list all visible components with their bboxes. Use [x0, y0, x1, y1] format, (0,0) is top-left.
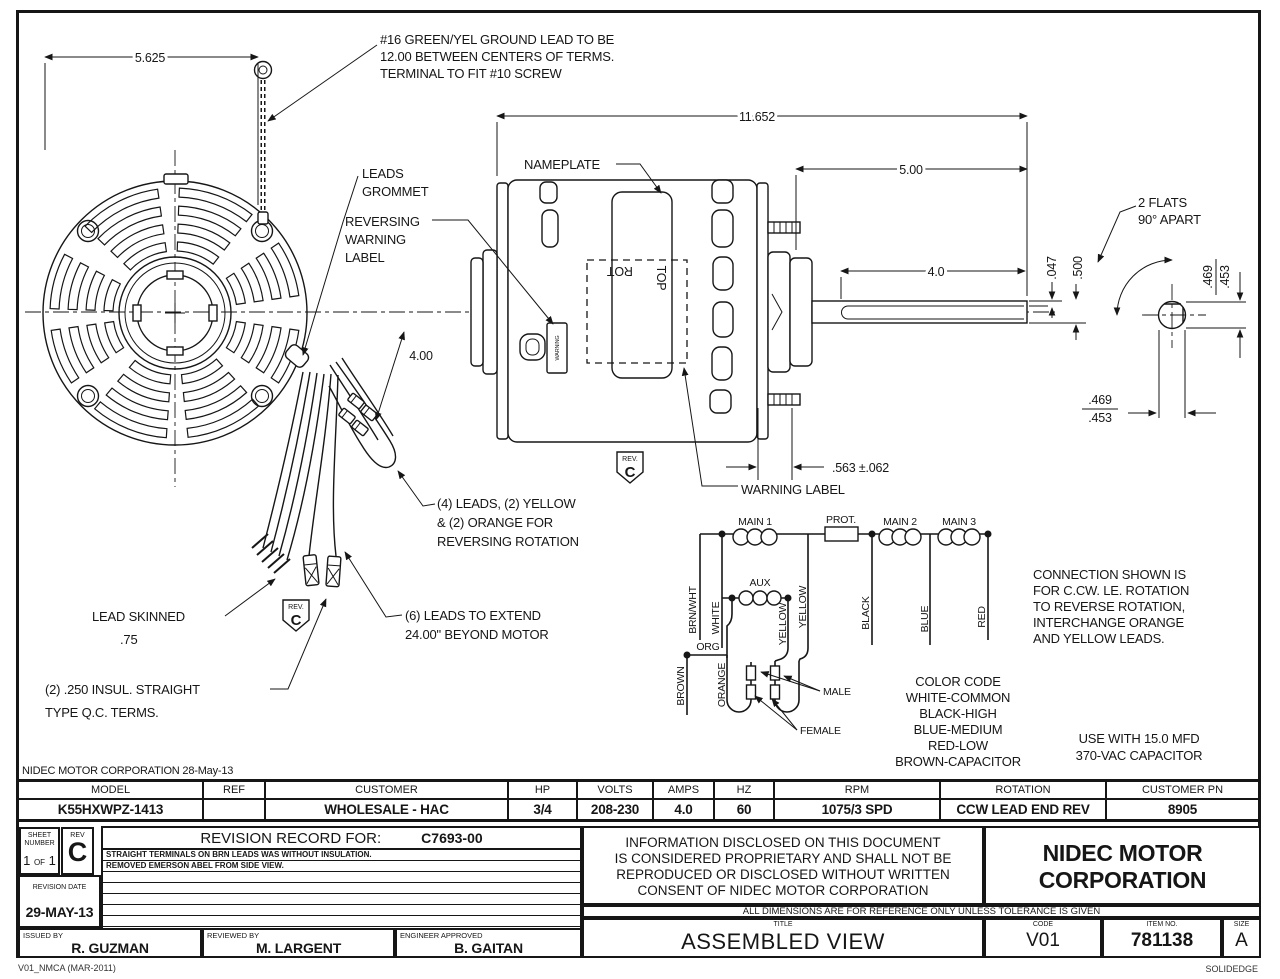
- black-label: BLACK: [860, 596, 872, 630]
- title-label: TITLE: [584, 920, 982, 928]
- code-value: V01: [986, 930, 1100, 952]
- spec-value-cell: 208-230: [578, 800, 654, 819]
- svg-text:90° APART: 90° APART: [1138, 212, 1201, 227]
- white-label: WHITE: [710, 601, 722, 634]
- drawing-sheet: ROT TOP WARNING: [0, 0, 1280, 979]
- spec-value-cell: K55HXWPZ-1413: [19, 800, 204, 819]
- reviewed-by-label: REVIEWED BY: [204, 930, 393, 940]
- spec-header-cell: HP: [509, 782, 578, 800]
- orange-label: ORANGE: [716, 663, 728, 708]
- title-cell: TITLE ASSEMBLED VIEW: [582, 918, 984, 958]
- side-view: ROT TOP WARNING: [471, 180, 1027, 442]
- spec-header-cell: VOLTS: [578, 782, 654, 800]
- revision-record-label: REVISION RECORD FOR:: [200, 830, 381, 847]
- two-flats-note: 2 FLATS: [1138, 195, 1187, 210]
- spec-header-cell: CUSTOMER PN: [1107, 782, 1258, 800]
- spec-header-cell: HZ: [715, 782, 775, 800]
- svg-text:& (2) ORANGE FOR: & (2) ORANGE FOR: [437, 515, 553, 530]
- reversing-warning-label: REVERSING: [345, 214, 420, 229]
- color-code: COLOR CODE: [915, 674, 1001, 689]
- reviewed-by-value: M. LARGENT: [204, 940, 393, 956]
- size-value: A: [1224, 930, 1259, 952]
- leads: [252, 358, 396, 587]
- main1-label: MAIN 1: [738, 516, 772, 528]
- brown-label: BROWN: [675, 666, 687, 705]
- six-leads-note: (6) LEADS TO EXTEND: [405, 608, 541, 623]
- revision-record: REVISION RECORD FOR: C7693-00 STRAIGHT T…: [101, 826, 582, 928]
- rot-mark: ROT: [607, 264, 633, 278]
- revision-note-row: [103, 905, 580, 916]
- svg-text:REVERSING ROTATION: REVERSING ROTATION: [437, 534, 579, 549]
- revision-note-row: REMOVED EMERSON ABEL FROM SIDE VIEW.: [103, 861, 580, 872]
- top-mark: TOP: [654, 266, 668, 291]
- dim-11652: 11.652: [739, 110, 775, 124]
- warning-label-callout: WARNING LABEL: [741, 482, 845, 497]
- svg-text:.469: .469: [1201, 265, 1215, 289]
- engineer-approved-box: ENGINEER APPROVED B. GAITAN: [395, 928, 582, 958]
- item-label: ITEM NO.: [1104, 920, 1220, 928]
- connection-note: CONNECTION SHOWN IS: [1033, 567, 1186, 582]
- item-cell: ITEM NO. 781138: [1102, 918, 1222, 958]
- spec-value-cell: 3/4: [509, 800, 578, 819]
- dim-047: .047: [1045, 256, 1059, 280]
- svg-text:INTERCHANGE ORANGE: INTERCHANGE ORANGE: [1033, 615, 1185, 630]
- size-label: SIZE: [1224, 920, 1259, 928]
- lead-skinned-note: LEAD SKINNED: [92, 609, 185, 624]
- vent-slot: [68, 263, 88, 310]
- issued-by-value: R. GUZMAN: [20, 940, 200, 956]
- spec-value-cell: 60: [715, 800, 775, 819]
- warning-sticker-text: WARNING: [555, 336, 561, 361]
- main3-coil: [938, 529, 980, 545]
- capacitor-note: USE WITH 15.0 MFD: [1079, 731, 1200, 746]
- vent-slot: [177, 242, 219, 264]
- rev-box: REV C: [61, 827, 94, 875]
- company-box: NIDEC MOTOR CORPORATION: [984, 826, 1261, 905]
- dim-469-453-right: .469 .453: [1186, 259, 1246, 358]
- yellow-label: YELLOW: [777, 602, 789, 645]
- ground-lead: [255, 62, 272, 225]
- four-leads-note: (4) LEADS, (2) YELLOW: [437, 496, 577, 511]
- svg-text:GROMMET: GROMMET: [362, 184, 429, 199]
- protector: [825, 527, 858, 541]
- spec-value-cell: 1075/3 SPD: [775, 800, 941, 819]
- rev-flag: REV. C: [283, 600, 309, 631]
- dim-500dia: .500: [1071, 256, 1085, 280]
- code-cell: CODE V01: [984, 918, 1102, 958]
- main3-label: MAIN 3: [942, 516, 976, 528]
- drawing-title: ASSEMBLED VIEW: [584, 929, 982, 955]
- spec-header-cell: CUSTOMER: [266, 782, 509, 800]
- spec-header-cell: AMPS: [654, 782, 715, 800]
- svg-text:TO REVERSE ROTATION,: TO REVERSE ROTATION,: [1033, 599, 1185, 614]
- sheet-number-label: SHEETNUMBER: [21, 829, 58, 848]
- svg-text:C: C: [625, 464, 636, 481]
- svg-text:24.00" BEYOND MOTOR: 24.00" BEYOND MOTOR: [405, 627, 549, 642]
- svg-text:BROWN-CAPACITOR: BROWN-CAPACITOR: [895, 754, 1021, 769]
- spec-header-cell: REF: [204, 782, 266, 800]
- dim-5625: 5.625: [135, 51, 166, 65]
- revision-date-value: 29-MAY-13: [20, 904, 99, 920]
- svg-text:REV.: REV.: [288, 604, 304, 611]
- spec-value-cell: CCW LEAD END REV: [941, 800, 1107, 819]
- dim-400: 4.00: [409, 349, 433, 363]
- skinned-ends: [252, 534, 290, 573]
- proprietary-box: INFORMATION DISCLOSED ON THIS DOCUMENT I…: [582, 826, 984, 905]
- spec-value-cell: 8905: [1107, 800, 1258, 819]
- yellow-label: YELLOW: [797, 585, 809, 628]
- spec-value-cell: [204, 800, 266, 819]
- svg-text:LABEL: LABEL: [345, 250, 384, 265]
- vent-slot: [104, 280, 120, 311]
- dim-469-453-bottom: .469 .453: [1082, 330, 1216, 425]
- aux-label: AUX: [750, 577, 771, 589]
- issued-by-box: ISSUED BY R. GUZMAN: [18, 928, 202, 958]
- issued-by-label: ISSUED BY: [20, 930, 200, 940]
- item-value: 781138: [1104, 930, 1220, 952]
- corner-stamp: NIDEC MOTOR CORPORATION 28-May-13: [22, 765, 233, 777]
- revision-date-box: REVISION DATE 29-MAY-13: [18, 875, 101, 928]
- vent-slot: [86, 271, 104, 310]
- revision-notes: STRAIGHT TERMINALS ON BRN LEADS WAS WITH…: [103, 850, 580, 938]
- revision-note-row: STRAIGHT TERMINALS ON BRN LEADS WAS WITH…: [103, 850, 580, 861]
- svg-text:AND YELLOW LEADS.: AND YELLOW LEADS.: [1033, 631, 1164, 646]
- code-label: CODE: [986, 920, 1100, 928]
- dim-563: .563 ±.062: [832, 461, 889, 475]
- spec-header-cell: MODEL: [19, 782, 204, 800]
- svg-text:REV.: REV.: [622, 456, 638, 463]
- svg-text:RED-LOW: RED-LOW: [928, 738, 989, 753]
- svg-text:WARNING: WARNING: [345, 232, 406, 247]
- svg-text:12.00 BETWEEN CENTERS OF TERMS: 12.00 BETWEEN CENTERS OF TERMS.: [380, 49, 614, 64]
- qc-terminal: [303, 555, 319, 586]
- svg-text:BLACK-HIGH: BLACK-HIGH: [919, 706, 996, 721]
- svg-text:.453: .453: [1218, 265, 1232, 289]
- svg-text:TYPE Q.C. TERMS.: TYPE Q.C. TERMS.: [45, 705, 159, 720]
- size-cell: SIZE A: [1222, 918, 1261, 958]
- spec-header-cell: ROTATION: [941, 782, 1107, 800]
- blue-label: BLUE: [919, 605, 931, 632]
- revision-record-number: C7693-00: [421, 830, 483, 846]
- dim-500: 5.00: [899, 163, 923, 177]
- revision-note-row: [103, 883, 580, 894]
- revision-note-row: [103, 894, 580, 905]
- leads-grommet-label: LEADS: [362, 166, 404, 181]
- svg-text:.453: .453: [1088, 411, 1112, 425]
- dim-40: 4.0: [928, 265, 945, 279]
- svg-text:C: C: [291, 612, 302, 629]
- org-label: ORG: [696, 641, 719, 653]
- sheet-number-box: SHEETNUMBER 1 OF 1: [19, 827, 60, 875]
- main2-coil: [879, 529, 921, 545]
- ground-note: #16 GREEN/YEL GROUND LEAD TO BE: [380, 32, 615, 47]
- rev-flag: REV. C: [617, 452, 643, 483]
- assembled-view-drawing: ROT TOP WARNING: [0, 0, 1280, 780]
- footer-right: SOLIDEDGE: [1205, 964, 1258, 974]
- spec-value-cell: 4.0: [654, 800, 715, 819]
- engineer-approved-label: ENGINEER APPROVED: [397, 930, 580, 940]
- qc-terms-note: (2) .250 INSUL. STRAIGHT: [45, 682, 200, 697]
- red-label: RED: [976, 606, 988, 628]
- hub: [119, 257, 231, 369]
- spec-header-cell: RPM: [775, 782, 941, 800]
- revision-date-label: REVISION DATE: [20, 877, 99, 891]
- prot-label: PROT.: [826, 514, 856, 526]
- svg-text:WHITE-COMMON: WHITE-COMMON: [906, 690, 1010, 705]
- nameplate-label: NAMEPLATE: [524, 157, 601, 172]
- engineer-approved-value: B. GAITAN: [397, 940, 580, 956]
- spec-value-cell: WHOLESALE - HAC: [266, 800, 509, 819]
- sheet-number-value: 1 OF 1: [21, 853, 58, 868]
- qc-terminal: [326, 556, 341, 587]
- svg-text:BLUE-MEDIUM: BLUE-MEDIUM: [914, 722, 1003, 737]
- male-label: MALE: [823, 686, 851, 698]
- svg-text:TERMINAL TO FIT #10 SCREW: TERMINAL TO FIT #10 SCREW: [380, 66, 563, 81]
- svg-text:370-VAC CAPACITOR: 370-VAC CAPACITOR: [1076, 748, 1203, 763]
- revision-note-row: [103, 916, 580, 927]
- brnwht-label: BRN/WHT: [687, 585, 699, 633]
- tolerance-strip: ALL DIMENSIONS ARE FOR REFERENCE ONLY UN…: [582, 905, 1261, 918]
- svg-text:.469: .469: [1088, 393, 1112, 407]
- main2-label: MAIN 2: [883, 516, 917, 528]
- shaft-end-view: [1117, 260, 1186, 329]
- rev-value: C: [63, 837, 92, 868]
- revision-note-row: [103, 872, 580, 883]
- aux-coil: [739, 591, 781, 605]
- vent-slot: [129, 361, 170, 384]
- spec-table: MODELREFCUSTOMERHPVOLTSAMPSHZRPMROTATION…: [16, 779, 1261, 822]
- footer-left: V01_NMCA (MAR-2011): [18, 963, 116, 973]
- female-label: FEMALE: [800, 725, 841, 737]
- svg-text:.75: .75: [120, 632, 137, 647]
- svg-text:FOR C.CW. LE. ROTATION: FOR C.CW. LE. ROTATION: [1033, 583, 1189, 598]
- main1-coil: [733, 529, 777, 545]
- reviewed-by-box: REVIEWED BY M. LARGENT: [202, 928, 395, 958]
